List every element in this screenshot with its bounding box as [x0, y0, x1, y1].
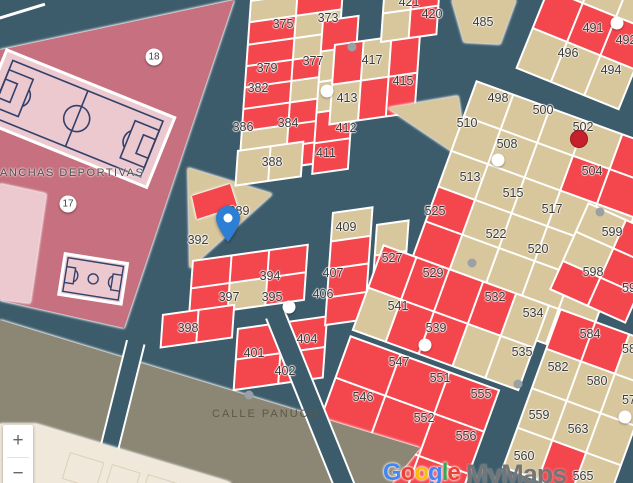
parcel-label-384: 384	[278, 116, 299, 130]
red-dot-marker[interactable]	[570, 130, 588, 148]
parcel-label-386: 386	[233, 120, 254, 134]
intersection-dot	[419, 339, 432, 352]
parcel-label-395: 395	[262, 290, 283, 304]
parcel-label-559: 559	[529, 408, 550, 422]
parcel-label-379: 379	[257, 61, 278, 75]
parcel-label-546: 546	[353, 390, 374, 404]
zoom-in-button[interactable]: +	[3, 425, 33, 457]
parcel-label-377: 377	[303, 54, 324, 68]
parcel-label-57: 57	[622, 393, 633, 407]
parcel-label-527: 527	[382, 251, 403, 265]
parcel-label-565: 565	[573, 469, 594, 483]
parcel-label-582: 582	[548, 360, 569, 374]
parcel-label-411: 411	[316, 146, 336, 160]
map-pin-marker[interactable]	[215, 205, 241, 248]
parcel-label-409: 409	[336, 220, 357, 234]
intersection-dot	[596, 208, 605, 217]
parcel-label-392: 392	[188, 233, 209, 247]
parcel-label-404: 404	[297, 332, 318, 346]
parcel-label-552: 552	[414, 411, 435, 425]
google-logo-letter: G	[383, 459, 401, 483]
google-logo: Google	[383, 459, 460, 483]
parcel-label-522: 522	[486, 227, 507, 241]
google-mymaps-watermark[interactable]: Google MyMaps	[383, 459, 566, 483]
parcel-label-580: 580	[587, 374, 608, 388]
area-label: ANCHAS DEPORTIVAS	[0, 167, 144, 179]
parcel-label-598: 598	[583, 265, 604, 279]
parcel-label-563: 563	[568, 422, 589, 436]
parcel-label-398: 398	[178, 321, 199, 335]
parcel-label-412: 412	[336, 121, 357, 135]
intersection-dot	[283, 301, 296, 314]
parcel-label-555: 555	[471, 387, 492, 401]
parcel-label-373: 373	[318, 11, 339, 25]
map-canvas[interactable]: ANCHAS DEPORTIVAS CALLE PANUCO 373375377…	[0, 0, 633, 483]
intersection-dot	[611, 17, 624, 30]
parcel-label-541: 541	[388, 299, 409, 313]
parcel-label-375: 375	[273, 17, 294, 31]
parcel-label-513: 513	[460, 170, 481, 184]
parcel-label-535: 535	[512, 345, 533, 359]
zoom-out-button[interactable]: −	[3, 458, 33, 483]
mymaps-logo: MyMaps	[466, 459, 567, 483]
intersection-dot	[619, 411, 632, 424]
intersection-dot	[348, 43, 357, 52]
parcel-label-525: 525	[425, 204, 446, 218]
numbered-circle-marker-17[interactable]: 17	[60, 196, 77, 213]
parcel-label-500: 500	[533, 103, 554, 117]
intersection-dot	[468, 259, 477, 268]
parcel-label-496: 496	[558, 46, 579, 60]
parcel-label-517: 517	[542, 202, 563, 216]
street-name-label: CALLE PANUCO	[212, 408, 320, 420]
parcel-label-413: 413	[337, 91, 358, 105]
google-logo-letter: o	[414, 459, 428, 483]
parcel-label-420: 420	[422, 7, 443, 21]
intersection-dot	[245, 391, 254, 400]
parcel-label-406: 406	[313, 287, 334, 301]
parcel-label-547: 547	[389, 355, 410, 369]
parcel-label-551: 551	[430, 371, 451, 385]
google-logo-letter: o	[401, 459, 415, 483]
parcel-label-584: 584	[580, 327, 601, 341]
parcel-label-539: 539	[426, 321, 447, 335]
parcel-label-534: 534	[523, 306, 544, 320]
parcel-label-58: 58	[622, 342, 633, 356]
intersection-dot	[321, 85, 334, 98]
parcel-label-504: 504	[582, 164, 603, 178]
parcel-label-529: 529	[423, 266, 444, 280]
parcel-label-485: 485	[473, 15, 494, 29]
parcel-label-59: 59	[622, 281, 633, 295]
parcel-label-492: 492	[616, 33, 633, 47]
parcel-label-382: 382	[248, 81, 269, 95]
parcel-label-599: 599	[602, 225, 623, 239]
parcel-label-401: 401	[244, 346, 265, 360]
parcel-label-394: 394	[260, 269, 281, 283]
parcel-label-415: 415	[393, 74, 414, 88]
parcel-label-407: 407	[323, 266, 344, 280]
zoom-control: + −	[3, 425, 33, 483]
google-logo-letter: g	[428, 459, 442, 483]
intersection-dot	[514, 380, 523, 389]
parcel-label-491: 491	[583, 21, 604, 35]
parcel-label-556: 556	[456, 429, 477, 443]
parcel-label-508: 508	[497, 137, 518, 151]
parcel-label-515: 515	[503, 186, 524, 200]
parcel-label-421: 421	[399, 0, 420, 9]
google-logo-letter: e	[447, 459, 459, 483]
parcel-label-417: 417	[362, 53, 383, 67]
parcel-label-532: 532	[485, 290, 506, 304]
parcel-label-402: 402	[275, 364, 296, 378]
parcel-label-397: 397	[219, 290, 240, 304]
parcel-label-388: 388	[262, 155, 283, 169]
parcel-label-498: 498	[488, 91, 509, 105]
intersection-dot	[492, 154, 505, 167]
parcel-label-520: 520	[528, 242, 549, 256]
parcel-label-494: 494	[601, 63, 622, 77]
parcel-label-510: 510	[457, 116, 478, 130]
numbered-circle-marker-18[interactable]: 18	[146, 49, 163, 66]
